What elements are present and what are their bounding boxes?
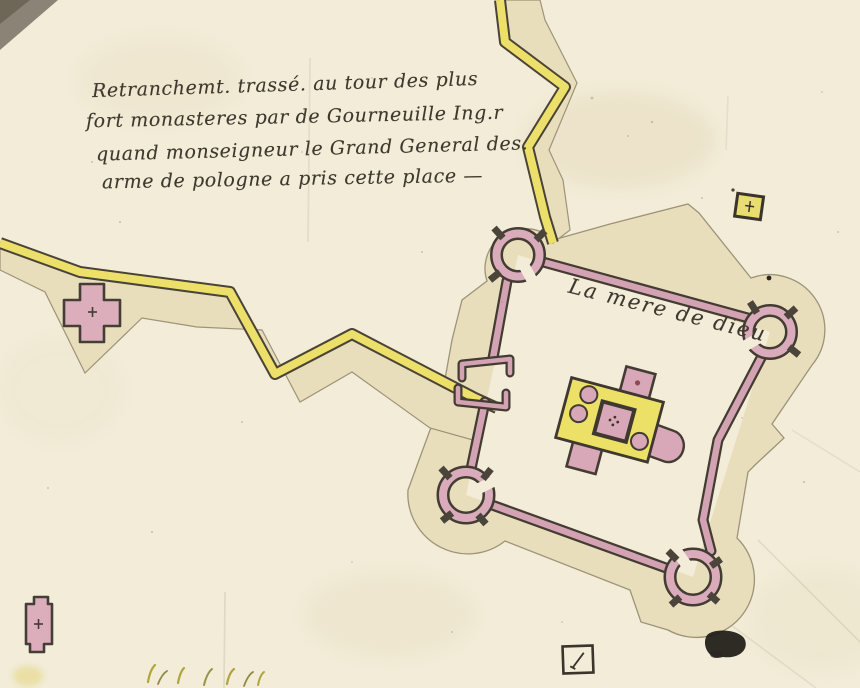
manuscript-map: Retranchemt. trassé. au tour des plus fo… [0,0,860,688]
ink-blot [705,631,746,658]
building-southwest [26,597,52,652]
paint-smudge [13,666,43,686]
ink-speck [731,188,734,191]
ink-speck [767,276,772,281]
marker-square-northeast [735,193,764,219]
